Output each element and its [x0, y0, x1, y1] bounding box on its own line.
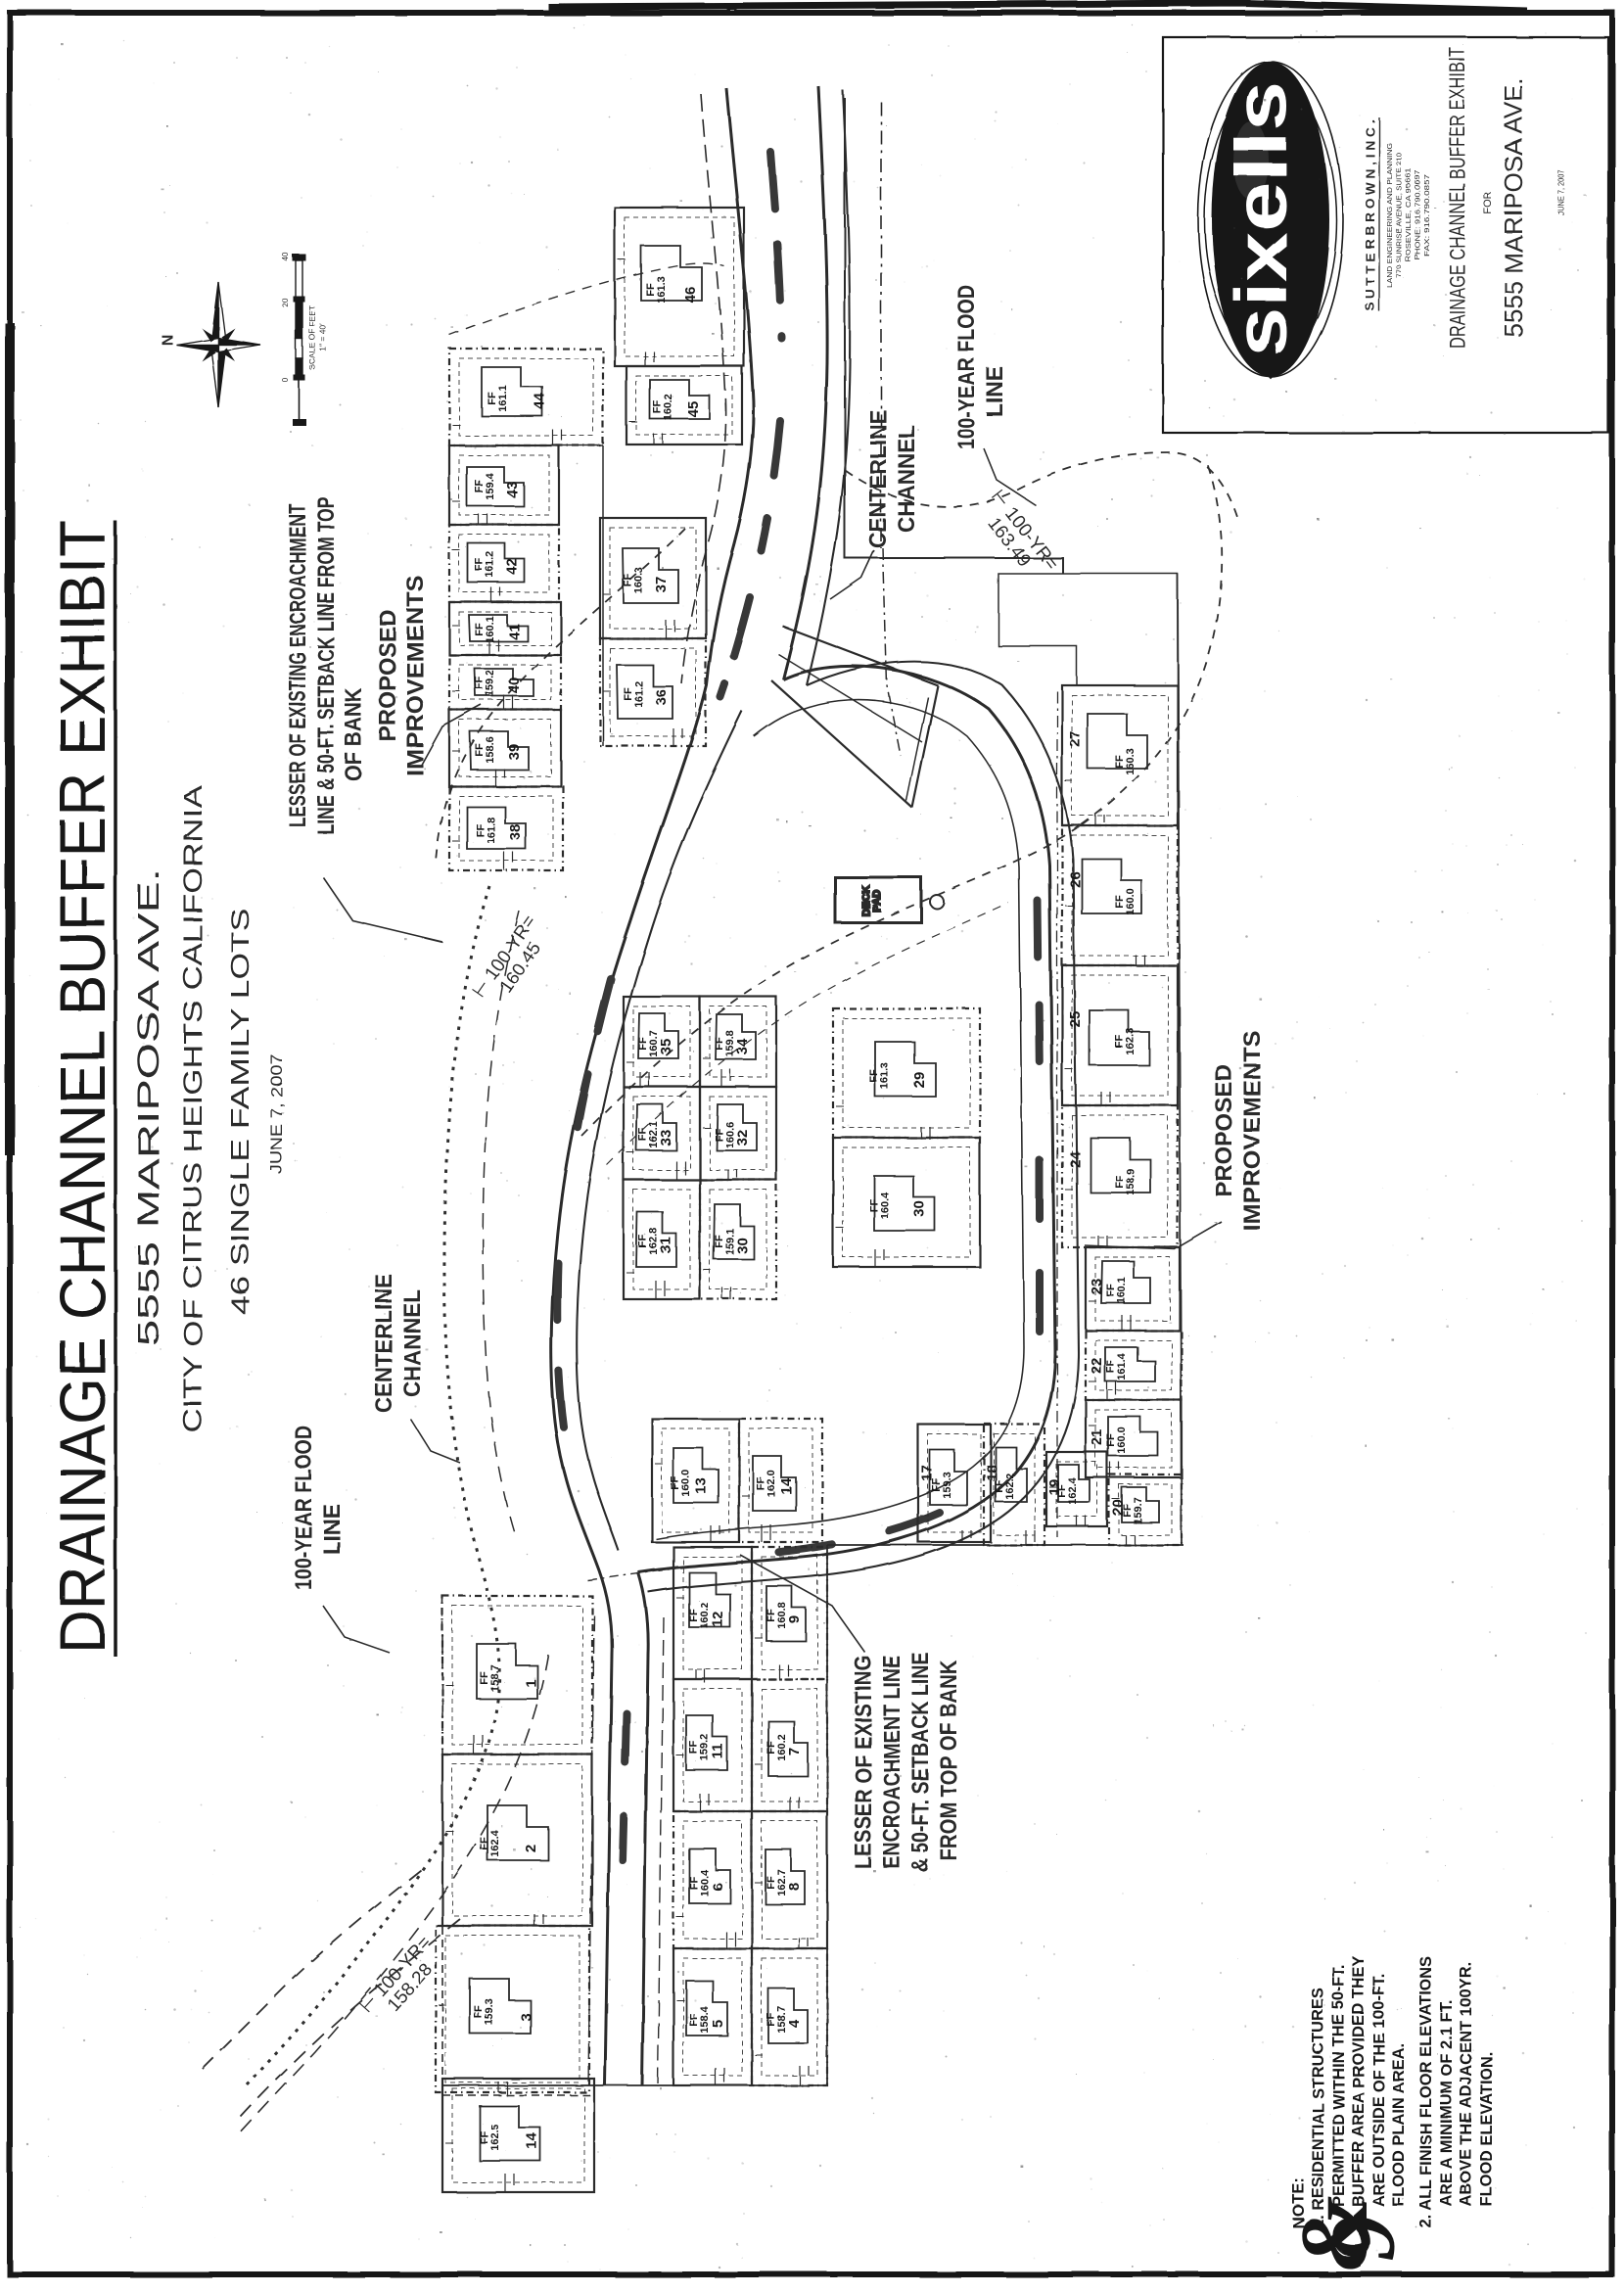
svg-text:2. ALL FINISH FLOOR ELEVATIONS: 2. ALL FINISH FLOOR ELEVATIONS: [1417, 1956, 1435, 2228]
svg-text:160.0: 160.0: [1125, 888, 1137, 915]
svg-text:162.5: 162.5: [489, 2124, 501, 2151]
svg-text:161.3: 161.3: [879, 1062, 891, 1090]
svg-text:41: 41: [506, 624, 523, 640]
svg-text:161.1: 161.1: [497, 385, 509, 412]
svg-text:OF BANK: OF BANK: [341, 687, 367, 781]
svg-text:35: 35: [658, 1039, 674, 1055]
svg-text:162.0: 162.0: [766, 1470, 777, 1497]
svg-text:1. RESIDENTIAL STRUCTURES: 1. RESIDENTIAL STRUCTURES: [1310, 1989, 1327, 2228]
svg-text:162.4: 162.4: [1067, 1476, 1079, 1504]
svg-text:14: 14: [524, 2132, 540, 2149]
svg-text:JUNE 7, 2007: JUNE 7, 2007: [267, 1054, 286, 1175]
svg-text:158.9: 158.9: [1125, 1168, 1137, 1195]
svg-text:3: 3: [518, 2013, 534, 2021]
svg-text:100-YEAR FLOOD: 100-YEAR FLOOD: [953, 285, 980, 449]
svg-text:160.0: 160.0: [680, 1470, 692, 1497]
svg-text:161.8: 161.8: [486, 817, 497, 844]
svg-text:22: 22: [1089, 1358, 1105, 1375]
svg-text:30: 30: [734, 1238, 751, 1254]
svg-text:FOR: FOR: [1482, 191, 1494, 213]
svg-text:17: 17: [919, 1466, 936, 1482]
svg-text:24: 24: [1067, 1150, 1084, 1167]
svg-text:FROM TOP OF BANK: FROM TOP OF BANK: [936, 1660, 962, 1861]
svg-text:23: 23: [1089, 1279, 1105, 1295]
svg-text:5555 MARIPOSA AVE.: 5555 MARIPOSA AVE.: [131, 868, 165, 1346]
svg-text:N: N: [160, 334, 176, 346]
svg-text:PAD: PAD: [871, 890, 883, 912]
svg-text:161.4: 161.4: [1116, 1352, 1128, 1380]
svg-text:9: 9: [786, 1615, 803, 1623]
svg-text:161.2: 161.2: [485, 551, 496, 579]
svg-text:ARE OUTSIDE OF THE 100-FT.: ARE OUTSIDE OF THE 100-FT.: [1370, 1974, 1388, 2207]
svg-text:160.4: 160.4: [699, 1868, 711, 1895]
svg-text:IMPROVEMENTS: IMPROVEMENTS: [1239, 1031, 1266, 1232]
svg-text:9: 9: [1311, 2216, 1415, 2263]
svg-text:sixells: sixells: [1221, 81, 1302, 357]
svg-text:158.7: 158.7: [489, 1664, 501, 1692]
svg-text:31: 31: [658, 1238, 674, 1254]
svg-text:LESSER OF EXISTING: LESSER OF EXISTING: [851, 1656, 877, 1869]
svg-text:36: 36: [653, 689, 670, 706]
svg-text:39: 39: [506, 744, 523, 761]
svg-text:S U T T E R B R O W N , I N C: S U T T E R B R O W N , I N C .: [1363, 119, 1377, 311]
svg-text:JUNE 7, 2007: JUNE 7, 2007: [1557, 169, 1566, 215]
svg-text:160.3: 160.3: [633, 567, 645, 594]
svg-text:162.2: 162.2: [1004, 1473, 1016, 1500]
svg-text:CENTERLINE: CENTERLINE: [371, 1274, 397, 1413]
svg-text:160.1: 160.1: [485, 616, 496, 643]
svg-text:45: 45: [685, 401, 702, 418]
svg-text:SCALE OF FEET: SCALE OF FEET: [307, 305, 317, 370]
svg-text:ROSEVILLE, CA 95661: ROSEVILLE, CA 95661: [1404, 168, 1413, 262]
svg-text:DRAINAGE CHANNEL BUFFER EXHIBI: DRAINAGE CHANNEL BUFFER EXHIBIT: [1445, 48, 1469, 349]
svg-text:100-YEAR FLOOD: 100-YEAR FLOOD: [291, 1426, 317, 1590]
svg-text:158.4: 158.4: [699, 2005, 711, 2033]
svg-text:14: 14: [778, 1477, 795, 1494]
svg-text:21: 21: [1089, 1429, 1105, 1446]
svg-text:20: 20: [1110, 1500, 1127, 1517]
svg-text:40: 40: [506, 678, 523, 694]
svg-text:PERMITTED WITHIN THE 50-FT.: PERMITTED WITHIN THE 50-FT.: [1330, 1965, 1348, 2208]
svg-text:PHONE: 916.790.0697: PHONE: 916.790.0697: [1414, 170, 1422, 260]
svg-text:33: 33: [658, 1130, 674, 1146]
svg-text:LINE & 50-FT. SETBACK LINE FRO: LINE & 50-FT. SETBACK LINE FROM TOP: [313, 497, 340, 835]
svg-text:DRAINAGE CHANNEL BUFFER EXHIBI: DRAINAGE CHANNEL BUFFER EXHIBIT: [46, 520, 118, 1654]
svg-text:LESSER OF EXISTING ENCROACHMEN: LESSER OF EXISTING ENCROACHMENT: [285, 504, 311, 827]
svg-text:5: 5: [710, 2020, 726, 2028]
svg-text:6: 6: [710, 1883, 726, 1891]
svg-text:IMPROVEMENTS: IMPROVEMENTS: [402, 576, 429, 776]
svg-text:770 SUNRISE AVENUE, SUITE 210: 770 SUNRISE AVENUE, SUITE 210: [1395, 153, 1404, 278]
svg-text:46: 46: [682, 287, 699, 304]
svg-text:0: 0: [281, 377, 290, 382]
svg-text:CENTERLINE: CENTERLINE: [865, 409, 892, 548]
svg-text:25: 25: [1067, 1011, 1084, 1028]
svg-text:161.3: 161.3: [656, 276, 668, 304]
svg-text:32: 32: [734, 1130, 751, 1146]
svg-text:44: 44: [532, 393, 548, 409]
svg-text:8: 8: [786, 1883, 803, 1891]
svg-text:160.2: 160.2: [663, 394, 674, 421]
svg-text:160.4: 160.4: [879, 1191, 891, 1218]
svg-text:161.2: 161.2: [633, 680, 645, 708]
svg-text:1″ = 40′: 1″ = 40′: [318, 323, 328, 351]
svg-text:26: 26: [1067, 871, 1084, 888]
svg-text:159.4: 159.4: [485, 472, 496, 499]
svg-text:CITY OF CITRUS HEIGHTS CALIFO: CITY OF CITRUS HEIGHTS CALIFORNIA: [178, 785, 208, 1433]
svg-text:38: 38: [507, 824, 524, 841]
svg-text:160.3: 160.3: [1125, 748, 1137, 775]
svg-text:158.6: 158.6: [485, 736, 496, 764]
svg-text:2: 2: [523, 1845, 539, 1852]
svg-text:162.4: 162.4: [489, 1829, 501, 1856]
svg-text:46 SINGLE FAMILY LOTS: 46 SINGLE FAMILY LOTS: [225, 909, 255, 1315]
svg-text:42: 42: [504, 559, 521, 576]
svg-text:160.1: 160.1: [1116, 1277, 1128, 1304]
svg-text:30: 30: [911, 1201, 928, 1218]
svg-text:12: 12: [710, 1612, 726, 1628]
svg-text:159.7: 159.7: [1133, 1497, 1144, 1524]
svg-text:BUFFER AREA PROVIDED THEY: BUFFER AREA PROVIDED THEY: [1350, 1956, 1368, 2207]
svg-text:LINE: LINE: [982, 366, 1008, 417]
svg-text:27: 27: [1067, 731, 1084, 748]
svg-text:159.3: 159.3: [484, 1998, 495, 2026]
svg-text:34: 34: [734, 1038, 751, 1054]
svg-text:FAX: 916.790.0857: FAX: 916.790.0857: [1422, 174, 1431, 257]
svg-text:LAND ENGINEERING AND PLANNING: LAND ENGINEERING AND PLANNING: [1385, 143, 1394, 288]
svg-text:1: 1: [523, 1679, 539, 1687]
svg-text:37: 37: [653, 577, 670, 593]
svg-text:FLOOD ELEVATION.: FLOOD ELEVATION.: [1478, 2051, 1496, 2207]
svg-text:43: 43: [504, 482, 521, 498]
svg-text:4: 4: [786, 2019, 803, 2028]
svg-text:18: 18: [984, 1465, 1000, 1481]
svg-text:5555 MARIPOSA AVE.: 5555 MARIPOSA AVE.: [1499, 78, 1528, 338]
svg-text:11: 11: [710, 1744, 726, 1759]
svg-text:ENCROACHMENT LINE: ENCROACHMENT LINE: [879, 1656, 905, 1869]
svg-text:13: 13: [693, 1478, 710, 1495]
svg-text:LINE: LINE: [319, 1504, 346, 1555]
svg-text:160.0: 160.0: [1116, 1427, 1128, 1454]
svg-text:PROPOSED: PROPOSED: [1211, 1065, 1237, 1197]
svg-text:CHANNEL: CHANNEL: [894, 425, 920, 533]
svg-text:CHANNEL: CHANNEL: [399, 1289, 426, 1397]
svg-text:7: 7: [786, 1748, 803, 1755]
svg-text:ARE A MINIMUM OF 2.1 FT.: ARE A MINIMUM OF 2.1 FT.: [1438, 2000, 1456, 2207]
svg-text:159.2: 159.2: [485, 670, 496, 697]
svg-text:29: 29: [911, 1072, 928, 1089]
svg-text:162.3: 162.3: [1125, 1028, 1137, 1055]
svg-text:PROPOSED: PROPOSED: [375, 610, 401, 742]
svg-text:FLOOD PLAIN AREA.: FLOOD PLAIN AREA.: [1390, 2043, 1408, 2207]
svg-text:ABOVE THE ADJACENT 100YR.: ABOVE THE ADJACENT 100YR.: [1458, 1962, 1475, 2207]
svg-text:40: 40: [281, 252, 290, 260]
svg-text:20: 20: [281, 298, 290, 306]
